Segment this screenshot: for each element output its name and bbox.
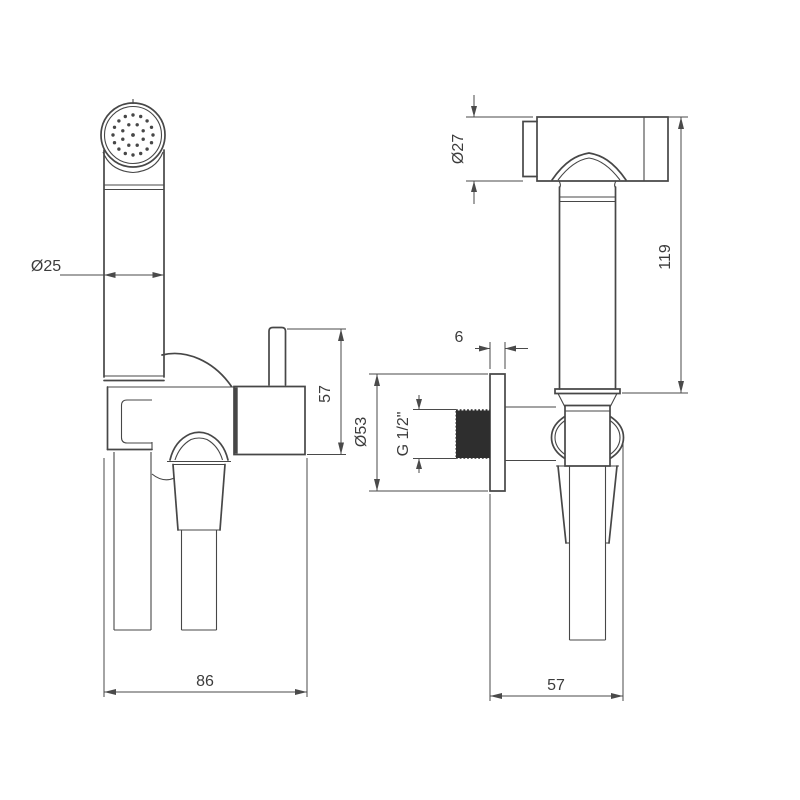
technical-drawing-page: Ø25 57 86	[0, 0, 800, 800]
dim-label-handle-diameter: Ø25	[31, 258, 61, 275]
dim-body-height: 119	[622, 117, 688, 393]
dim-overall-width: 86	[104, 458, 307, 697]
dim-label-plate-thickness: 6	[455, 329, 464, 346]
dim-label-plate-diameter: Ø53	[353, 417, 370, 447]
dim-thread-size: G 1/2"	[395, 395, 456, 473]
front-view-drawing: Ø25 57 86	[31, 99, 346, 697]
pipe-side	[505, 407, 556, 461]
dim-label-overall-depth: 57	[547, 677, 565, 694]
thread-connector-side	[456, 411, 490, 459]
side-view-drawing: Ø27 119 6 Ø53	[353, 95, 688, 701]
wall-plate-side	[490, 374, 505, 491]
handle-side	[555, 181, 620, 409]
dim-head-diameter: Ø27	[450, 95, 533, 204]
dim-overall-depth: 57	[490, 442, 623, 701]
hose-front	[114, 452, 217, 630]
dim-label-overall-width: 86	[196, 673, 214, 690]
dim-handle-diameter: Ø25	[31, 258, 164, 278]
dim-valve-height: 57	[287, 329, 346, 455]
spray-head-front	[101, 99, 165, 173]
dim-label-body-height: 119	[657, 244, 674, 270]
handle-front	[104, 150, 164, 381]
valve-knob-front	[269, 328, 286, 386]
bidet-sprayer-technical-drawing: Ø25 57 86	[0, 0, 800, 800]
wall-bracket-front	[108, 387, 175, 480]
spray-head-side	[523, 117, 668, 181]
dim-plate-thickness: 6	[455, 329, 528, 369]
holder-ring-side	[552, 406, 624, 467]
dim-label-thread-size: G 1/2"	[395, 412, 412, 457]
hose-side	[556, 466, 619, 640]
holder-cone-front	[167, 432, 231, 530]
dim-label-valve-height: 57	[317, 385, 334, 403]
dim-label-head-diameter: Ø27	[450, 134, 467, 164]
